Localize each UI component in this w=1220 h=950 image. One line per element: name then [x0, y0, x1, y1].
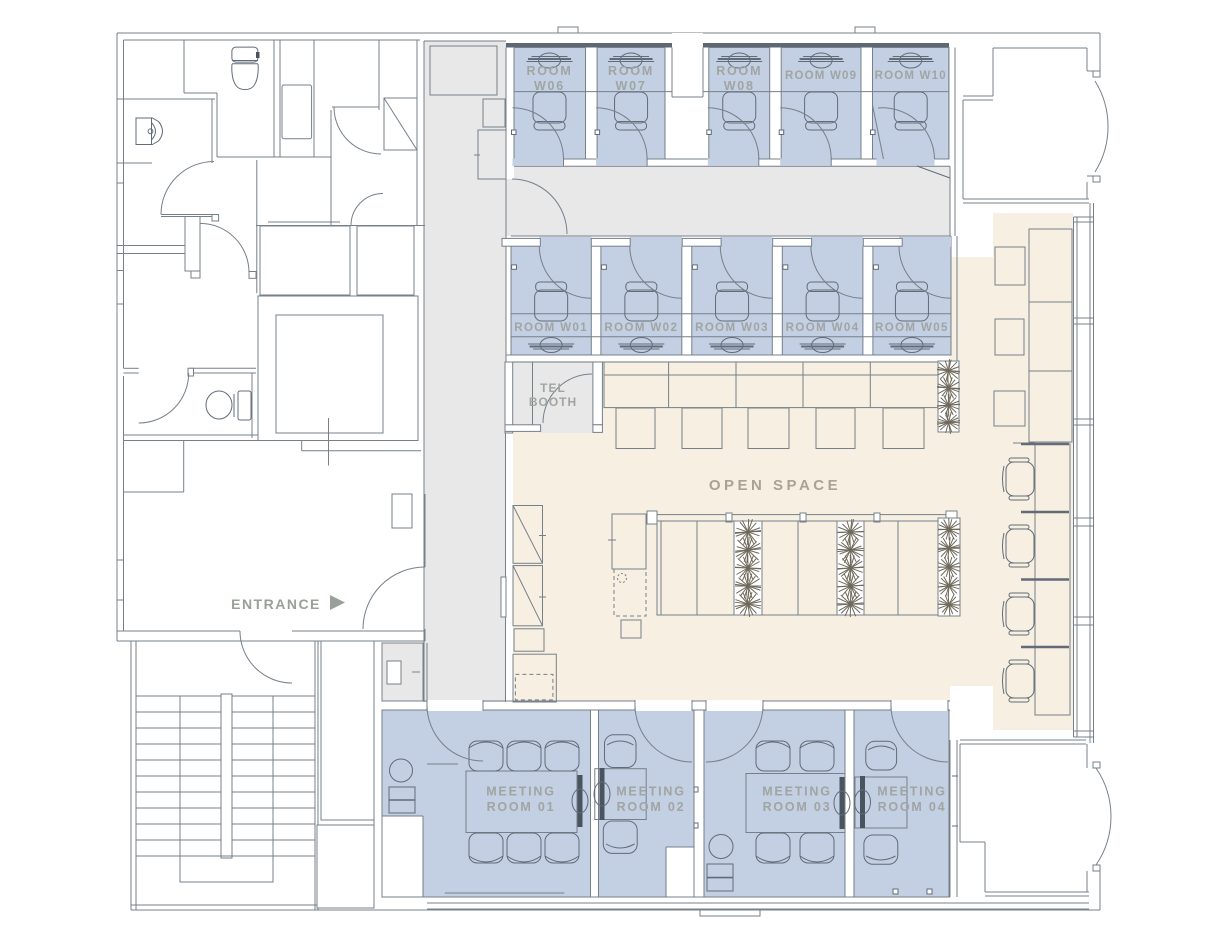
svg-text:ROOM 04: ROOM 04 — [878, 800, 947, 814]
svg-text:W07: W07 — [615, 79, 646, 93]
svg-text:ROOM W04: ROOM W04 — [786, 322, 860, 334]
svg-text:MEETING: MEETING — [877, 785, 947, 799]
svg-text:ROOM: ROOM — [608, 64, 654, 78]
svg-text:ROOM W01: ROOM W01 — [514, 322, 588, 334]
svg-text:ROOM 03: ROOM 03 — [763, 800, 832, 814]
svg-text:ROOM 02: ROOM 02 — [617, 800, 686, 814]
svg-text:ROOM W09: ROOM W09 — [785, 70, 857, 82]
svg-text:TEL: TEL — [540, 381, 566, 395]
svg-text:ROOM: ROOM — [526, 64, 572, 78]
svg-text:MEETING: MEETING — [616, 785, 686, 799]
svg-text:MEETING: MEETING — [762, 785, 832, 799]
svg-text:W08: W08 — [724, 79, 755, 93]
svg-text:ROOM W05: ROOM W05 — [875, 322, 949, 334]
svg-text:ROOM W03: ROOM W03 — [695, 322, 769, 334]
svg-text:BOOTH: BOOTH — [529, 395, 577, 409]
svg-text:W06: W06 — [534, 79, 565, 93]
svg-text:ENTRANCE: ENTRANCE — [231, 596, 321, 612]
svg-text:OPEN SPACE: OPEN SPACE — [709, 477, 841, 494]
svg-text:ROOM 01: ROOM 01 — [487, 800, 556, 814]
svg-text:ROOM: ROOM — [716, 64, 762, 78]
svg-text:ROOM W02: ROOM W02 — [604, 322, 678, 334]
svg-text:MEETING: MEETING — [486, 785, 556, 799]
svg-text:ROOM W10: ROOM W10 — [875, 70, 947, 82]
